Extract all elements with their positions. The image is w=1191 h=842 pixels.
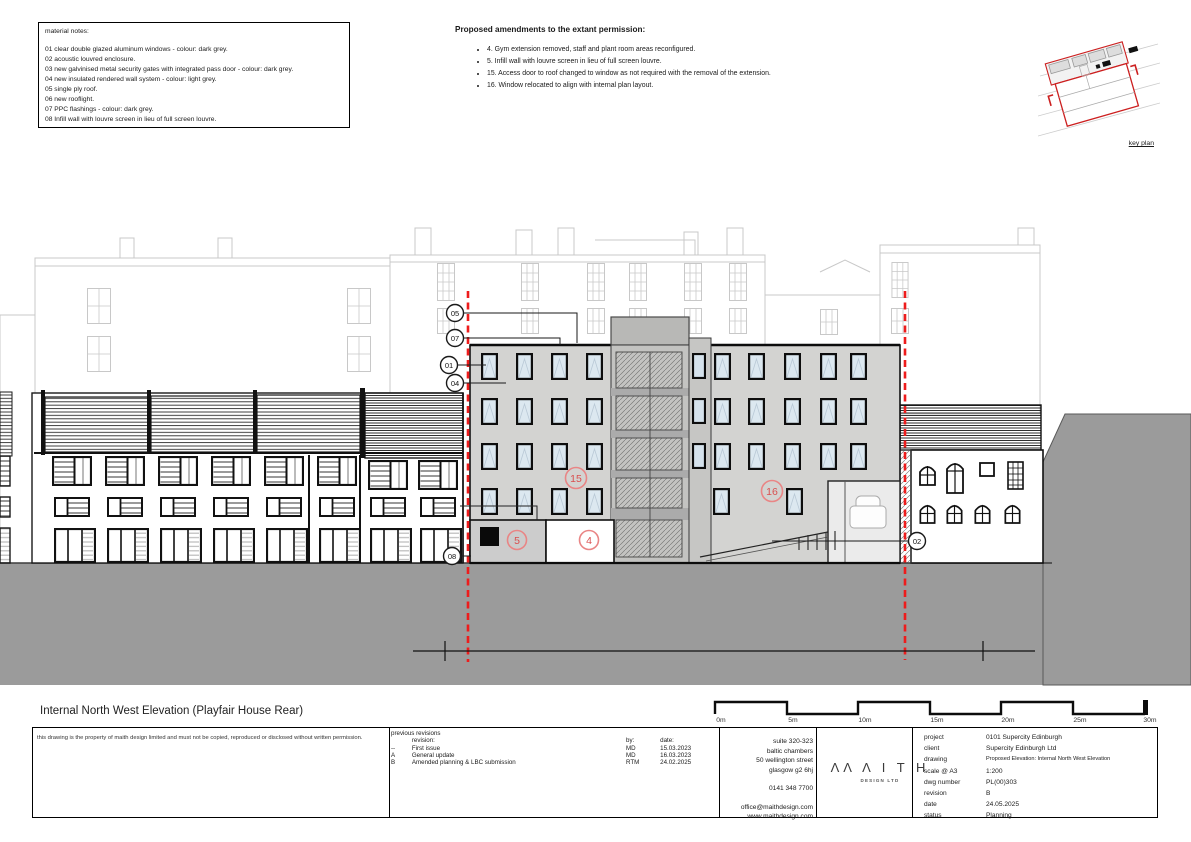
company-address: suite 320-323 baltic chambers 50 welling…	[721, 737, 813, 822]
project-info-row: client Supercity Edinburgh Ltd	[918, 743, 1155, 754]
callout-05: 05	[447, 305, 464, 322]
drawing-title: Internal North West Elevation (Playfair …	[40, 705, 303, 717]
revision-letter: --	[391, 745, 412, 752]
revision-description: Amended planning & LBC submission	[412, 759, 626, 766]
scale-label-10m: 10m	[858, 717, 872, 724]
louvre-door	[480, 527, 499, 546]
status-value: Planning	[986, 810, 1155, 821]
date-label: date	[918, 799, 986, 810]
address-line: baltic chambers	[721, 747, 813, 757]
revision-row: A General update MD 16.03.2023	[391, 752, 717, 759]
revision-by: RTM	[626, 759, 660, 766]
callout-15-label: 15	[570, 473, 582, 485]
callout-08: 08	[444, 548, 461, 565]
revision-description: General update	[412, 752, 626, 759]
scale-bar-labels: 0m 5m 10m 15m 20m 25m 30m	[716, 717, 1157, 724]
company-phone: 0141 348 7700	[721, 784, 813, 794]
callout-07: 07	[447, 330, 464, 347]
project-info-row: project 0101 Supercity Edinburgh	[918, 732, 1155, 743]
callout-05-label: 05	[451, 309, 459, 318]
status-label: status	[918, 810, 986, 821]
project-info-row: dwg number PL(00)303	[918, 777, 1155, 788]
scale-label-30m: 30m	[1143, 717, 1157, 724]
main-building	[460, 317, 900, 563]
title-block-divider	[389, 728, 390, 817]
revision-date: 16.03.2023	[660, 752, 717, 759]
callout-04-label: 04	[451, 379, 459, 388]
scale-value: 1:200	[986, 766, 1155, 777]
callout-04: 04	[447, 375, 464, 392]
revision-by: MD	[626, 752, 660, 759]
callout-01-label: 01	[445, 361, 453, 370]
title-block: this drawing is the property of maith de…	[32, 727, 1158, 818]
revisions-columns: revision: by: date:	[391, 737, 717, 744]
revisions-header: previous revisions	[391, 730, 717, 737]
callout-16-label: 16	[766, 486, 778, 498]
project-label: project	[918, 732, 986, 743]
copyright-disclaimer: this drawing is the property of maith de…	[37, 735, 382, 741]
revision-row: B Amended planning & LBC submission RTM …	[391, 759, 717, 766]
date-value: 24.05.2025	[986, 799, 1155, 810]
revision-row: -- First issue MD 15.03.2023	[391, 745, 717, 752]
company-email: office@maithdesign.com	[721, 803, 813, 813]
terrace-left-sliver	[0, 392, 12, 563]
revision-by: MD	[626, 745, 660, 752]
scale-label-0m: 0m	[716, 717, 726, 724]
address-line: 50 wellington street	[721, 756, 813, 766]
revision-label: revision	[918, 788, 986, 799]
by-col-label: by:	[626, 737, 660, 744]
client-value: Supercity Edinburgh Ltd	[986, 743, 1155, 754]
date-col-label: date:	[660, 737, 717, 744]
callout-08-label: 08	[448, 552, 456, 561]
revision-description: First issue	[412, 745, 626, 752]
project-info-row: status Planning	[918, 810, 1155, 821]
revision-letter: A	[391, 752, 412, 759]
revisions-table: previous revisions revision: by: date: -…	[391, 730, 717, 767]
left-terraces	[0, 388, 463, 563]
scale-label-5m: 5m	[788, 717, 798, 724]
revision-date: 24.02.2025	[660, 759, 717, 766]
callout-07-label: 07	[451, 334, 459, 343]
callout-02: 02	[909, 533, 926, 550]
drawing-label: drawing	[918, 754, 986, 765]
project-info-row: date 24.05.2025	[918, 799, 1155, 810]
callout-4-label: 4	[586, 535, 592, 547]
dwg-number-label: dwg number	[918, 777, 986, 788]
project-value: 0101 Supercity Edinburgh	[986, 732, 1155, 743]
dwg-number-value: PL(00)303	[986, 777, 1155, 788]
revision-value: B	[986, 788, 1155, 799]
scale-label-15m: 15m	[930, 717, 944, 724]
address-line: glasgow g2 6hj	[721, 766, 813, 776]
scale-label-25m: 25m	[1073, 717, 1087, 724]
project-info: project 0101 Supercity Edinburgh client …	[918, 732, 1155, 822]
drawing-value: Proposed Elevation: Internal North West …	[986, 754, 1155, 765]
title-block-divider	[719, 728, 720, 817]
revision-letter: B	[391, 759, 412, 766]
tower-side-wing	[689, 338, 711, 563]
scale-label: scale @ A3	[918, 766, 986, 777]
project-info-row: revision B	[918, 788, 1155, 799]
drawing-sheet: material notes: 01 clear double glazed a…	[0, 0, 1191, 842]
callout-02-label: 02	[913, 537, 921, 546]
company-website: www.maithdesign.com	[721, 812, 813, 822]
scale-bar: 0m 5m 10m 15m 20m 25m 30m	[715, 700, 1157, 724]
client-label: client	[918, 743, 986, 754]
address-line: suite 320-323	[721, 737, 813, 747]
callout-01: 01	[441, 357, 458, 374]
project-info-row: scale @ A3 1:200	[918, 766, 1155, 777]
callout-5-label: 5	[514, 535, 520, 547]
project-info-row: drawing Proposed Elevation: Internal Nor…	[918, 754, 1155, 765]
revision-date: 15.03.2023	[660, 745, 717, 752]
tower-glazing	[616, 352, 682, 557]
revision-col-label: revision:	[412, 737, 626, 744]
scale-label-20m: 20m	[1001, 717, 1015, 724]
stair-tower	[611, 317, 689, 563]
